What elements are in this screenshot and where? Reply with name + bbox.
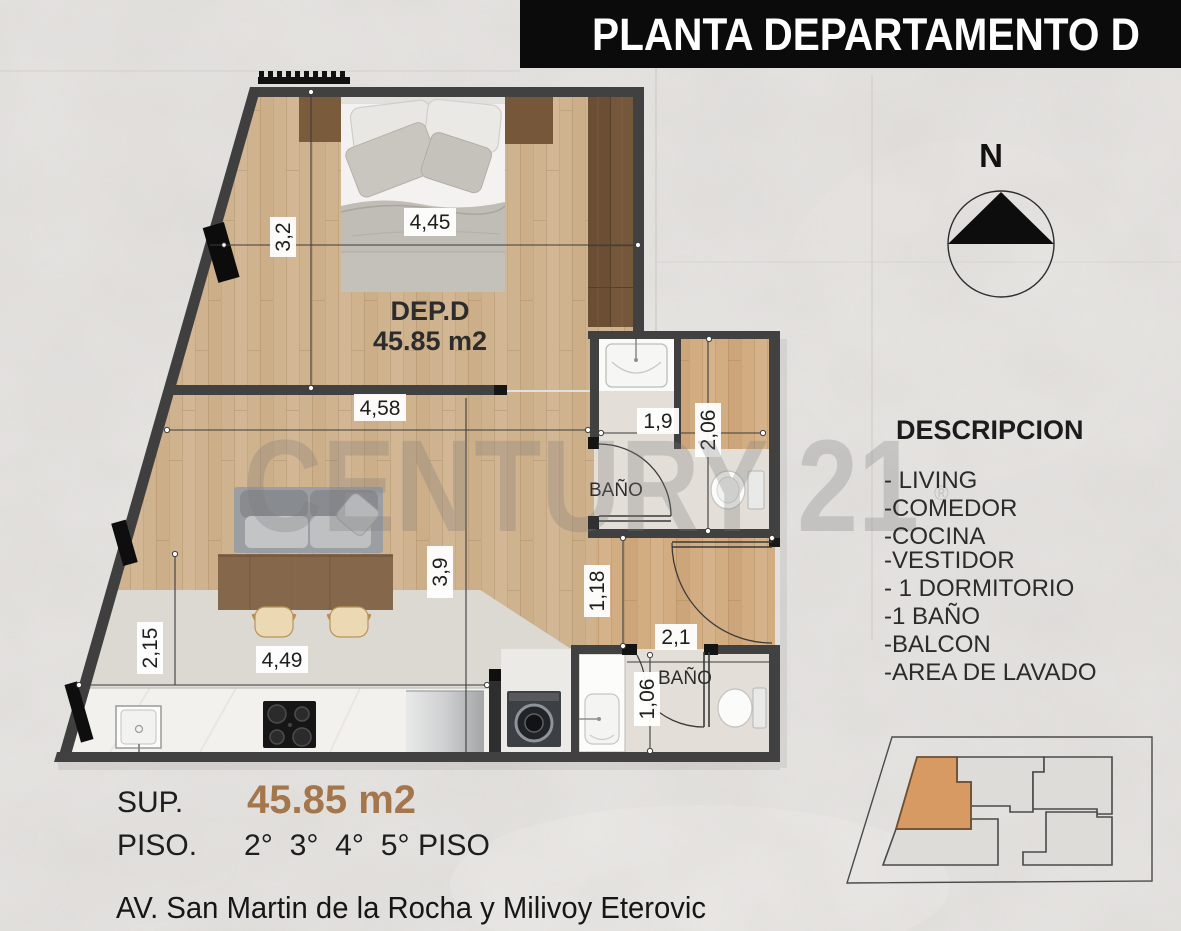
svg-text:-1 BAÑO: -1 BAÑO (884, 603, 980, 630)
svg-text:-AREA DE LAVADO: -AREA DE LAVADO (884, 659, 1097, 686)
svg-text:- LIVING: - LIVING (884, 467, 977, 494)
svg-text:DESCRIPCION: DESCRIPCION (896, 415, 1084, 445)
svg-text:1,06: 1,06 (636, 679, 659, 720)
svg-text:-COMEDOR: -COMEDOR (884, 495, 1017, 522)
svg-text:45.85 m2: 45.85 m2 (373, 326, 487, 356)
svg-text:2,15: 2,15 (139, 628, 162, 669)
svg-text:DEP.D: DEP.D (390, 296, 469, 326)
svg-text:-VESTIDOR: -VESTIDOR (884, 547, 1015, 574)
svg-text:4,45: 4,45 (410, 211, 451, 234)
svg-text:45.85 m2: 45.85 m2 (247, 778, 416, 822)
svg-text:-COCINA: -COCINA (884, 523, 985, 550)
svg-text:2° 3° 4° 5° PISO: 2° 3° 4° 5° PISO (244, 829, 490, 862)
svg-text:PISO.: PISO. (117, 829, 197, 862)
svg-text:3,2: 3,2 (272, 222, 295, 251)
svg-text:4,49: 4,49 (262, 649, 303, 672)
svg-text:1,18: 1,18 (586, 571, 609, 612)
svg-text:BAÑO: BAÑO (658, 667, 712, 689)
svg-text:PLANTA DEPARTAMENTO D: PLANTA DEPARTAMENTO D (592, 9, 1140, 60)
svg-text:2,1: 2,1 (661, 626, 690, 649)
svg-text:-BALCON: -BALCON (884, 631, 991, 658)
svg-text:N: N (979, 137, 1003, 174)
svg-text:3,9: 3,9 (429, 557, 452, 586)
svg-text:SUP.: SUP. (117, 786, 183, 819)
svg-text:- 1 DORMITORIO: - 1 DORMITORIO (884, 575, 1074, 602)
svg-text:CENTURY 21: CENTURY 21 (243, 412, 919, 559)
svg-text:AV. San Martin de la Rocha y M: AV. San Martin de la Rocha y Milivoy Ete… (116, 890, 706, 925)
